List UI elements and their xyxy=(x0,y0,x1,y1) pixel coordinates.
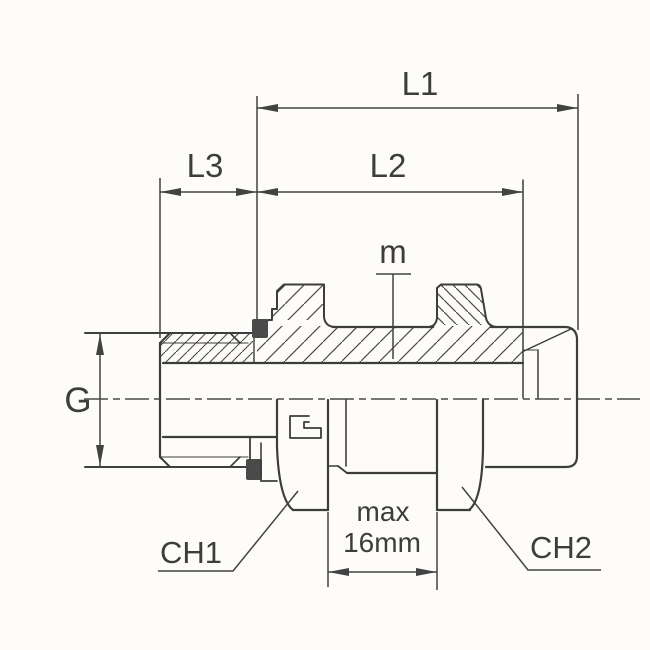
label-m: m xyxy=(379,233,407,270)
label-max: max xyxy=(357,496,410,527)
seal-ring-section-bottom xyxy=(246,459,262,480)
technical-drawing-page: L1 L2 L3 G m max 16mm xyxy=(0,0,650,650)
seal-ring-section-top xyxy=(252,319,268,338)
label-ch2: CH2 xyxy=(530,530,592,565)
dim-label-l1: L1 xyxy=(402,65,439,102)
locknut-section-hatch xyxy=(272,285,324,321)
left-stud-wall-hatch xyxy=(160,333,253,363)
label-ch1: CH1 xyxy=(160,535,222,570)
label-16mm: 16mm xyxy=(343,527,421,558)
dim-label-g: G xyxy=(64,381,91,420)
technical-drawing-canvas: L1 L2 L3 G m max 16mm xyxy=(0,0,650,650)
nut-section-hatch xyxy=(437,285,487,326)
dim-label-l2: L2 xyxy=(370,147,407,184)
dim-label-l3: L3 xyxy=(187,147,224,184)
